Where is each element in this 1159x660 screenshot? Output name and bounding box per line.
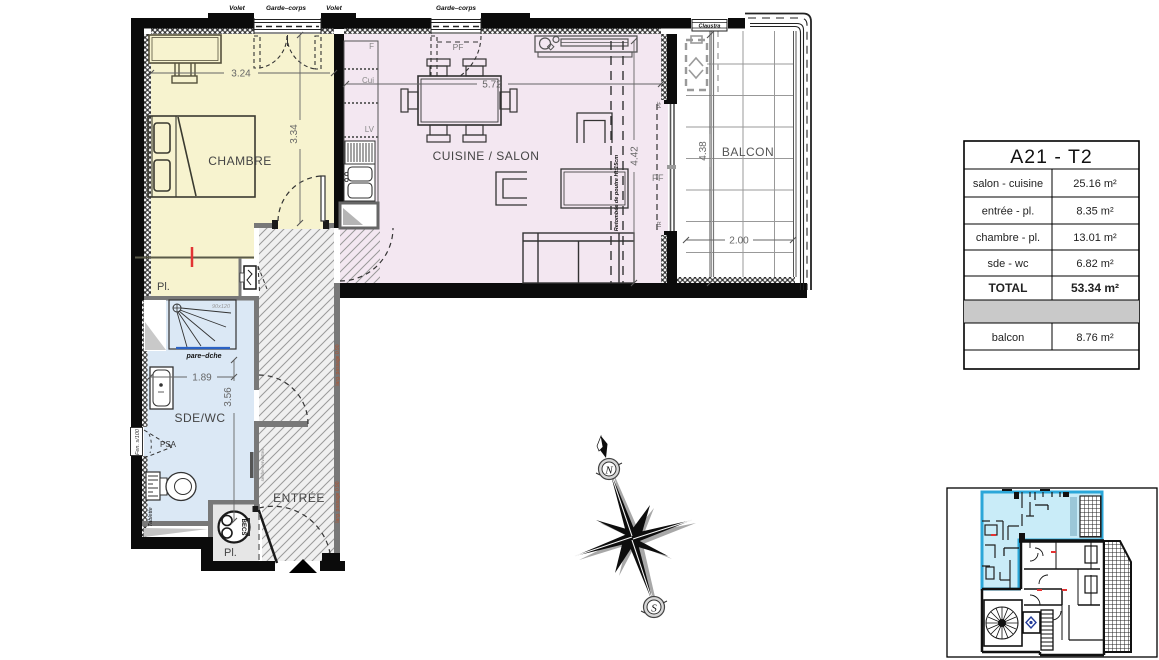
svg-text:25.16 m²: 25.16 m² (1073, 178, 1117, 190)
svg-text:4.38: 4.38 (698, 141, 709, 161)
svg-text:Claustra: Claustra (698, 24, 720, 30)
svg-text:larg. passage 0.90: larg. passage 0.90 (335, 481, 341, 522)
svg-text:CHAMBRE: CHAMBRE (208, 154, 272, 168)
svg-text:balcon: balcon (992, 332, 1024, 344)
svg-text:1.89: 1.89 (192, 373, 212, 384)
svg-text:PSA: PSA (160, 440, 177, 449)
svg-text:8.76 m²: 8.76 m² (1076, 332, 1114, 344)
svg-text:CUISINE / SALON: CUISINE / SALON (433, 149, 540, 163)
svg-text:53.34 m²: 53.34 m² (1071, 281, 1119, 295)
svg-text:Retombée de poutre Ht:15cm: Retombée de poutre Ht:15cm (614, 155, 620, 232)
svg-text:5.72: 5.72 (482, 80, 502, 91)
svg-text:TR: TR (657, 221, 663, 228)
svg-text:PF: PF (652, 173, 664, 183)
svg-text:larg. passage 0.90: larg. passage 0.90 (335, 344, 341, 385)
svg-text:TOTAL: TOTAL (989, 281, 1028, 295)
svg-text:SDE/WC: SDE/WC (175, 411, 226, 425)
svg-text:3.56: 3.56 (223, 387, 234, 407)
svg-text:pare–dche: pare–dche (185, 353, 221, 360)
svg-text:chambre - pl.: chambre - pl. (976, 232, 1040, 244)
svg-text:3.34: 3.34 (289, 124, 300, 144)
svg-text:4.42: 4.42 (630, 146, 641, 166)
svg-text:BALCON: BALCON (722, 145, 774, 159)
svg-text:LV: LV (365, 125, 375, 134)
svg-text:Garde–corps: Garde–corps (266, 5, 306, 12)
svg-text:Volet: Volet (229, 5, 245, 12)
svg-text:2.00: 2.00 (729, 236, 749, 247)
svg-text:3.24: 3.24 (231, 69, 251, 80)
svg-text:Volet: Volet (326, 5, 342, 12)
svg-text:F: F (369, 42, 374, 51)
svg-text:13.01 m²: 13.01 m² (1073, 232, 1117, 244)
svg-text:ENTRÉE: ENTRÉE (273, 490, 325, 505)
svg-text:sde - wc: sde - wc (988, 258, 1029, 270)
svg-text:N: N (604, 465, 613, 477)
svg-text:Tablette: Tablette (148, 507, 154, 526)
svg-text:90x120: 90x120 (212, 304, 231, 310)
svg-text:PF: PF (453, 42, 464, 52)
svg-text:8.35 m²: 8.35 m² (1076, 206, 1114, 218)
svg-text:A21 - T2: A21 - T2 (1010, 146, 1092, 168)
svg-text:BECS: BECS (240, 519, 246, 536)
svg-text:6.82 m²: 6.82 m² (1076, 258, 1114, 270)
svg-text:salon - cuisine: salon - cuisine (973, 178, 1043, 190)
svg-text:PF: PF (657, 102, 663, 108)
svg-text:Fen. s/100: Fen. s/100 (135, 428, 141, 455)
svg-text:Garde–corps: Garde–corps (436, 5, 476, 12)
svg-text:sèche-serviettes: sèche-serviettes (260, 448, 265, 482)
svg-text:Pl.: Pl. (224, 547, 237, 559)
svg-text:Pl.: Pl. (157, 281, 170, 293)
svg-text:entrée - pl.: entrée - pl. (982, 206, 1035, 218)
svg-text:S: S (651, 603, 657, 615)
